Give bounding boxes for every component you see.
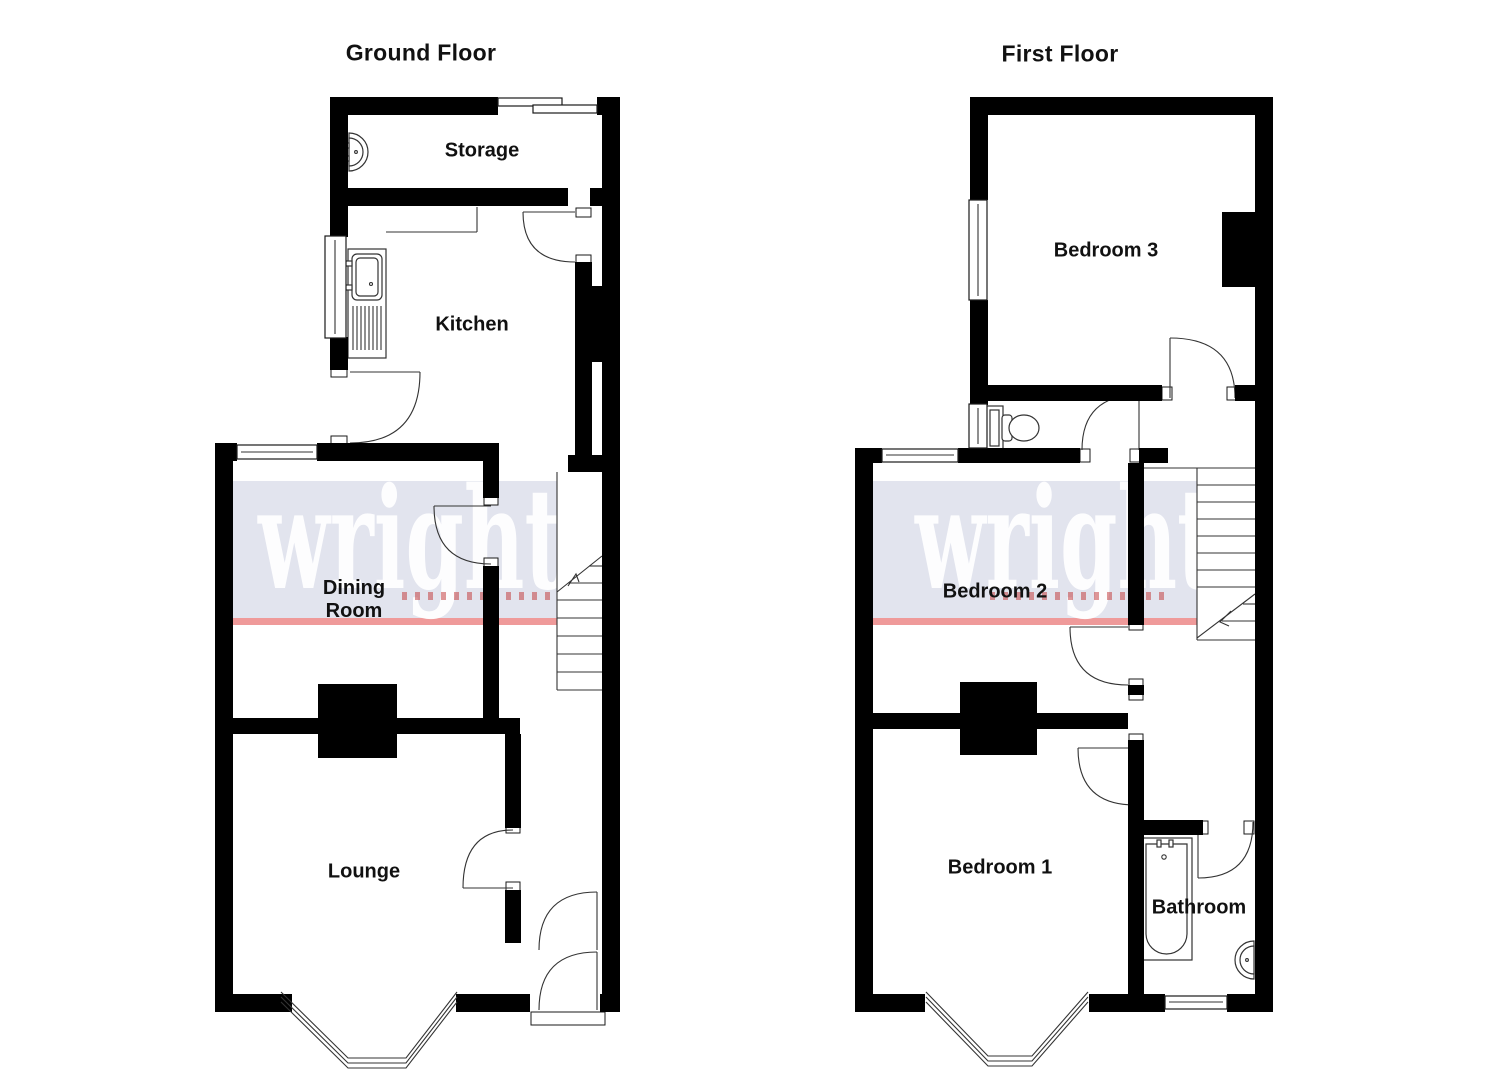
floorplan-drawing: wright [0,0,1485,1080]
bedroom1-bay-window [926,992,1088,1066]
storage-top-window [498,98,597,113]
room-label-kitchen: Kitchen [435,314,508,337]
dining-label-line1: Dining [323,577,385,600]
room-label-bedroom2: Bedroom 2 [943,581,1047,604]
room-label-bedroom3: Bedroom 3 [1054,240,1158,263]
first-floor-title: First Floor [1001,41,1118,68]
watermark-first: wright [870,458,1250,625]
landing-window [969,404,987,448]
kitchen-sink-unit-icon [343,249,386,358]
kitchen-counter [386,207,477,232]
ground-floor-plan: wright [215,97,620,1068]
lounge-bay-window [281,992,457,1068]
front-door-threshold [531,1012,605,1025]
room-label-bathroom: Bathroom [1152,897,1246,920]
bathroom-window [1165,996,1227,1009]
room-label-dining-room: Dining Room [323,577,385,623]
ground-floor-title: Ground Floor [346,40,497,67]
watermark-text-ground: wright [257,458,563,622]
watermark-ground: wright [228,458,563,625]
bedroom3-chimney-breast [1222,212,1255,287]
kitchen-window [325,236,346,338]
room-label-bedroom1: Bedroom 1 [948,857,1052,880]
floorplan-page: wright [0,0,1485,1080]
toilet-icon [986,406,1039,450]
dining-window [237,445,317,459]
kitchen-chimney-breast [575,286,607,362]
staircase-ground [557,472,602,690]
bedroom-chimney-breast [960,682,1037,755]
room-label-storage: Storage [445,140,519,163]
bedroom2-window [882,449,958,462]
lounge-chimney-breast [318,684,397,758]
room-label-lounge: Lounge [328,861,400,884]
bedroom3-window [969,200,987,300]
dining-label-line2: Room [323,600,385,623]
